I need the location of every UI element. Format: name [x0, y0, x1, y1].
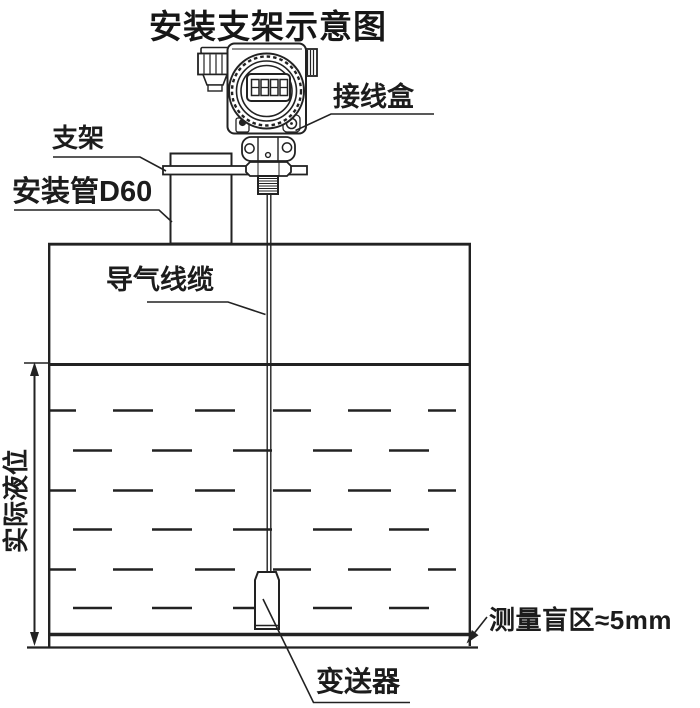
installation-diagram: 安装支架示意图 支架 安装管D60 接线盒 导气线缆 实际液位 测量盲区≈5mm…: [0, 0, 700, 708]
label-blind-zone: 测量盲区≈5mm: [489, 606, 672, 635]
label-actual-level: 实际液位: [2, 445, 32, 557]
neck-connector-icon: [242, 137, 295, 161]
diagram-title: 安装支架示意图: [148, 0, 388, 48]
tank-outline: [27, 244, 478, 648]
blind-zone-leader: [474, 617, 487, 634]
label-air-cable: 导气线缆: [106, 266, 214, 296]
label-junction-box: 接线盒: [333, 83, 414, 113]
lcd-display-icon: [247, 74, 290, 101]
probe-icon: [255, 572, 279, 629]
blind-zone-arrowhead: [467, 630, 479, 644]
air-cable-leader: [147, 302, 266, 315]
mounting-pipe-leader: [14, 210, 172, 222]
cable-gland-icon: [198, 48, 231, 92]
label-bracket: 支架: [52, 124, 104, 153]
hex-nut-icon: [246, 162, 291, 176]
threaded-stem-icon: [258, 176, 278, 194]
air-cable-line: [267, 194, 271, 576]
bracket-leader: [53, 157, 166, 171]
label-transmitter: 变送器: [316, 667, 400, 698]
label-mounting-pipe: 安装管D60: [12, 177, 152, 209]
junction-box-leader: [296, 114, 435, 131]
liquid-dashes: [50, 411, 456, 609]
